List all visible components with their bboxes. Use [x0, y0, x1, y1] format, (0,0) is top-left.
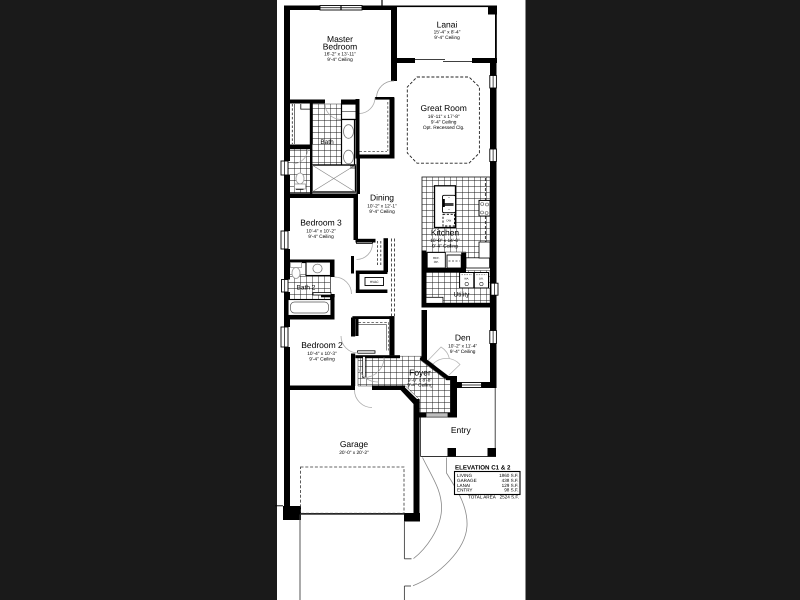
svg-text:15'-4" x 8'-4": 15'-4" x 8'-4": [434, 30, 461, 36]
svg-text:9'-4" Ceiling: 9'-4" Ceiling: [309, 356, 335, 362]
svg-text:Bedroom 2: Bedroom 2: [301, 340, 343, 350]
svg-text:Den: Den: [455, 333, 471, 343]
svg-text:98 S.F.: 98 S.F.: [504, 488, 518, 493]
svg-text:DW: DW: [446, 219, 451, 223]
svg-text:16'-11" x 17'-8": 16'-11" x 17'-8": [428, 114, 460, 120]
svg-text:Garage: Garage: [340, 439, 369, 449]
svg-text:Bath 2: Bath 2: [297, 285, 316, 292]
svg-text:10'-8" x 14'-0": 10'-8" x 14'-0": [430, 238, 460, 244]
svg-text:Opt. Recessed Clg.: Opt. Recessed Clg.: [423, 125, 465, 131]
svg-text:DR.: DR.: [479, 278, 484, 281]
svg-text:10'-2" x 12'-1": 10'-2" x 12'-1": [367, 204, 397, 210]
svg-text:Bath: Bath: [320, 139, 334, 146]
svg-text:Dining: Dining: [370, 193, 394, 203]
svg-text:Utility: Utility: [454, 292, 471, 299]
svg-text:9'-4" Ceiling: 9'-4" Ceiling: [432, 244, 458, 250]
svg-text:Bedroom: Bedroom: [323, 42, 358, 52]
svg-text:9'-4" Ceiling: 9'-4" Ceiling: [450, 349, 476, 355]
svg-text:9'-4" Ceiling: 9'-4" Ceiling: [327, 57, 353, 63]
svg-text:9'-4" Ceiling: 9'-4" Ceiling: [407, 383, 433, 389]
svg-text:9'-4" Ceiling: 9'-4" Ceiling: [308, 234, 334, 240]
svg-text:TOTAL AREA 2524 S.F.: TOTAL AREA 2524 S.F.: [468, 495, 519, 500]
svg-text:20'-0" x 20'-2": 20'-0" x 20'-2": [339, 450, 369, 456]
svg-text:10'-4" x 10'-3": 10'-4" x 10'-3": [307, 351, 337, 357]
svg-text:Kitchen: Kitchen: [431, 228, 460, 238]
svg-text:WA.: WA.: [464, 278, 469, 281]
svg-text:9'-4" Ceiling: 9'-4" Ceiling: [369, 209, 395, 215]
svg-text:Bedroom 3: Bedroom 3: [300, 218, 342, 228]
svg-text:9'-4" Ceiling: 9'-4" Ceiling: [434, 35, 460, 41]
svg-text:Entry: Entry: [451, 425, 472, 435]
svg-text:Great Room: Great Room: [421, 103, 467, 113]
svg-text:Foyer: Foyer: [409, 368, 431, 378]
svg-text:16'-2" x 13'-11": 16'-2" x 13'-11": [324, 52, 356, 58]
svg-text:10'-2" x 11'-4": 10'-2" x 11'-4": [448, 344, 477, 350]
svg-text:10'-4" x 10'-2": 10'-4" x 10'-2": [306, 229, 336, 235]
svg-text:Lanai: Lanai: [437, 20, 458, 30]
svg-text:ELEVATION C1 & 2: ELEVATION C1 & 2: [455, 465, 511, 472]
svg-text:ENTRY: ENTRY: [457, 488, 473, 493]
svg-text:9'-4" Ceiling: 9'-4" Ceiling: [431, 119, 457, 125]
svg-text:HVAC: HVAC: [370, 280, 379, 284]
svg-text:OP.: OP.: [434, 260, 439, 264]
